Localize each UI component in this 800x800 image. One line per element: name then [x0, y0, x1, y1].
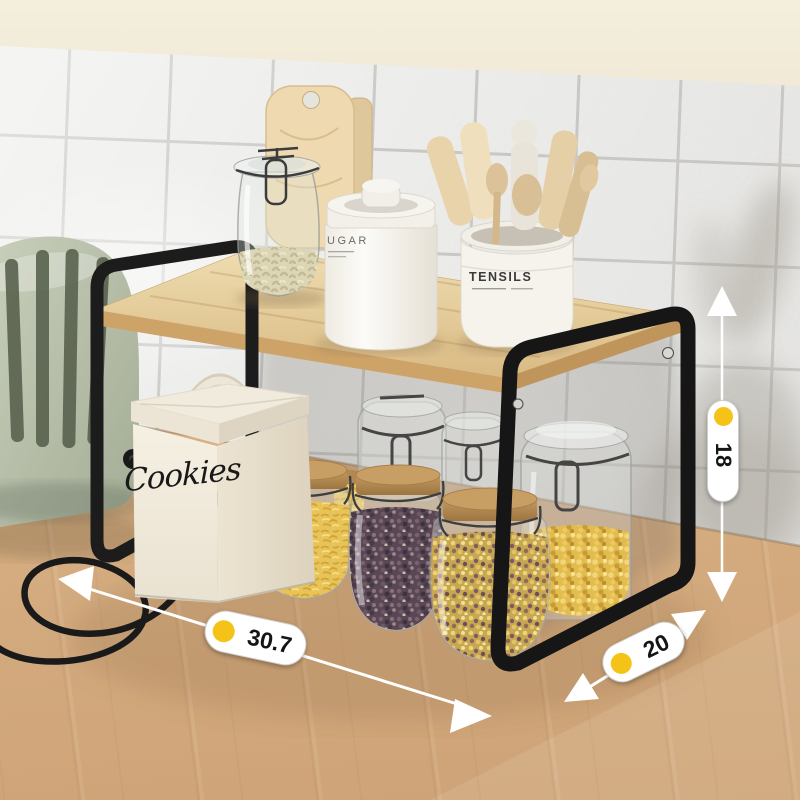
canister-label: UGAR: [327, 235, 369, 247]
sugar-canister: UGAR: [325, 179, 437, 350]
depth-value: 20: [640, 630, 673, 662]
height-value: 18: [712, 443, 734, 467]
frame-screw: [663, 348, 674, 359]
purple-rice-jar: [348, 465, 443, 631]
yellow-dot-icon: [211, 618, 237, 644]
crock-label: TENSILS: [469, 270, 532, 284]
yellow-dot-icon: [714, 407, 733, 426]
scene: UGAR TENSILS: [0, 0, 800, 800]
glass-clip-jar: [234, 148, 320, 296]
mixed-grain-jar: [430, 488, 550, 661]
height-dimension-badge: 18: [707, 400, 739, 502]
length-value: 30.7: [245, 625, 294, 657]
yellow-dot-icon: [607, 649, 635, 677]
board-hang-hole: [303, 92, 320, 109]
frame-screw: [513, 399, 523, 409]
kitchen-shelf-product-photo: UGAR TENSILS: [0, 0, 800, 800]
